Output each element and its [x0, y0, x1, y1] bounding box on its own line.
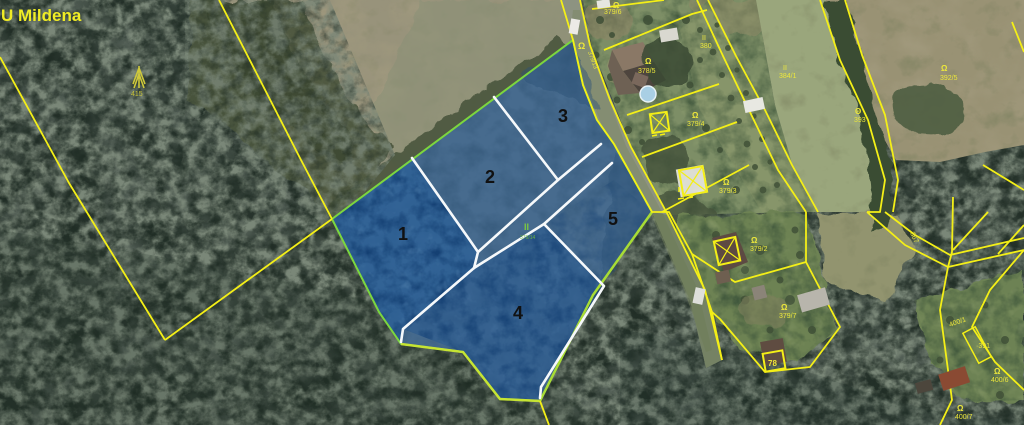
svg-text:II: II: [702, 35, 706, 42]
svg-text:4: 4: [513, 303, 523, 323]
svg-text:379/3: 379/3: [719, 188, 737, 195]
svg-text:II: II: [783, 65, 787, 72]
svg-text:U Mildena: U Mildena: [1, 6, 82, 25]
svg-text:Ω: Ω: [957, 404, 964, 413]
svg-text:379/4: 379/4: [687, 121, 705, 128]
svg-text:Θ: Θ: [855, 107, 861, 116]
svg-text:Ω: Ω: [645, 57, 652, 66]
svg-text:379/6: 379/6: [604, 9, 622, 16]
svg-text:379/2: 379/2: [750, 246, 768, 253]
svg-text:384/1: 384/1: [779, 73, 797, 80]
svg-text:400/7: 400/7: [955, 414, 973, 421]
svg-text:1: 1: [398, 224, 408, 244]
svg-text:II: II: [524, 222, 529, 232]
svg-text:400/6: 400/6: [991, 377, 1009, 384]
svg-text:Ω: Ω: [994, 367, 1001, 376]
svg-text:Ω: Ω: [781, 303, 788, 312]
svg-text:3: 3: [558, 106, 568, 126]
svg-text:379/7: 379/7: [779, 313, 797, 320]
svg-text:2: 2: [485, 167, 495, 187]
svg-text:78: 78: [768, 359, 777, 368]
svg-text:393: 393: [854, 117, 866, 124]
svg-text:Ω: Ω: [751, 236, 758, 245]
svg-text:415: 415: [131, 91, 143, 98]
svg-text:Ω: Ω: [941, 64, 948, 73]
svg-text:378/5: 378/5: [638, 68, 656, 75]
svg-text:392/5: 392/5: [940, 75, 958, 82]
svg-text:5: 5: [608, 209, 618, 229]
svg-text:Ω: Ω: [692, 111, 699, 120]
svg-text:380: 380: [700, 43, 712, 50]
svg-text:Ω: Ω: [723, 178, 730, 187]
svg-text:Ω: Ω: [613, 1, 620, 10]
svg-text:Ω: Ω: [578, 41, 585, 51]
svg-text:379/14: 379/14: [520, 235, 536, 241]
svg-text:·391: ·391: [976, 343, 990, 350]
